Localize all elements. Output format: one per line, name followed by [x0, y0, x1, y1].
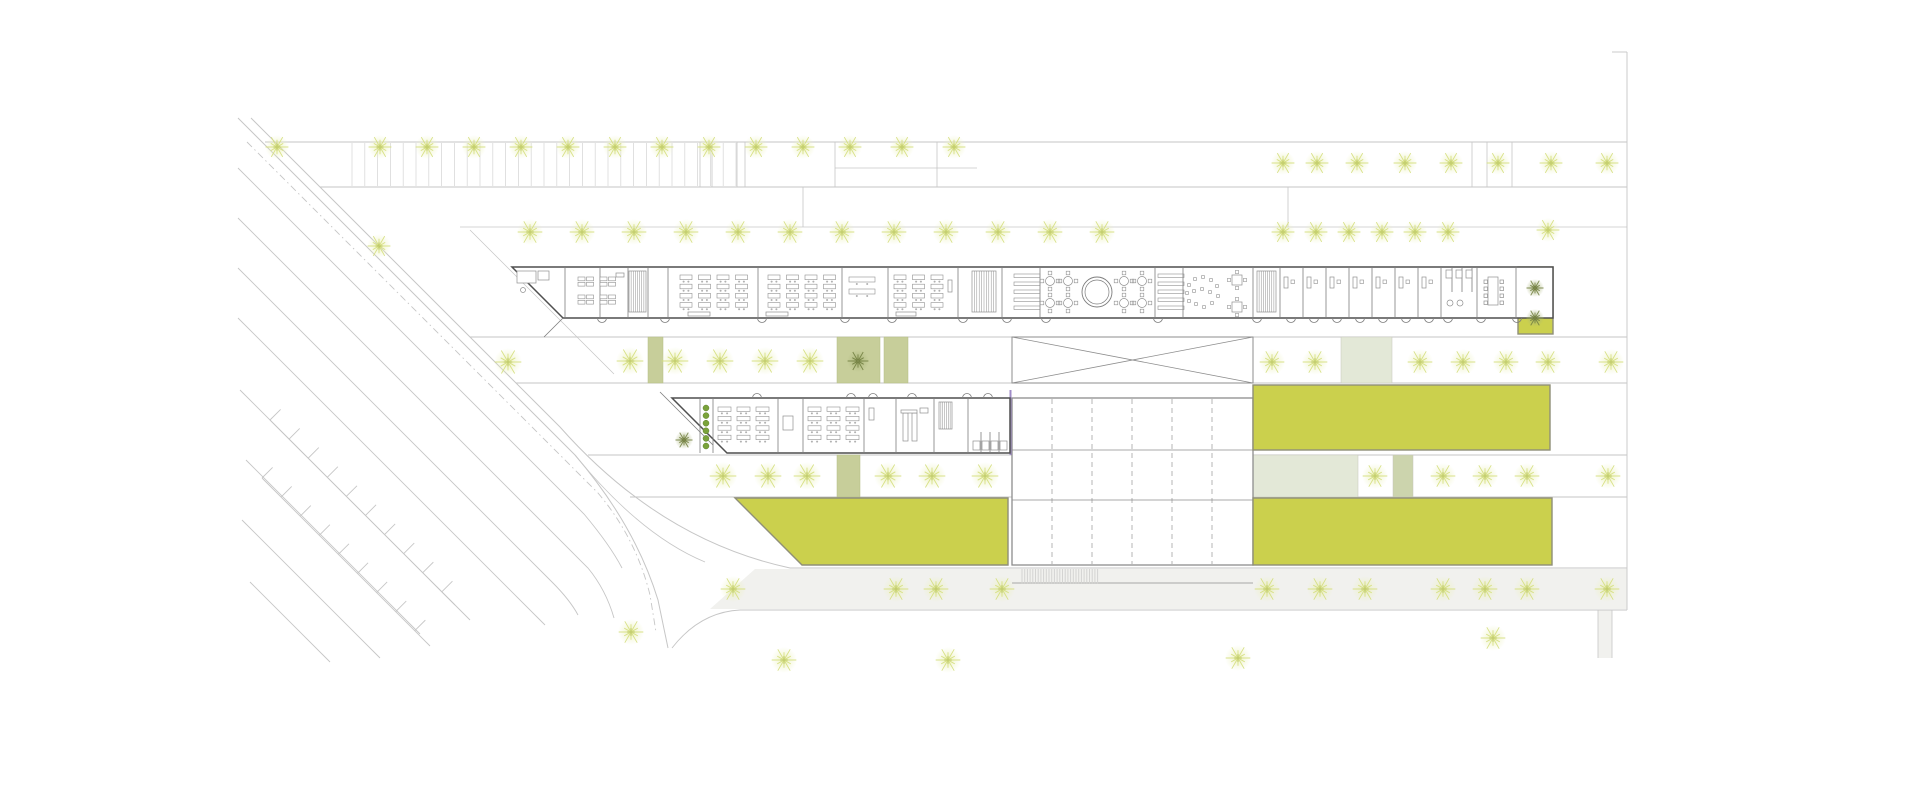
tree-symbol — [706, 347, 734, 375]
parking-tick — [385, 524, 396, 535]
tree-symbol — [791, 135, 815, 159]
chair-dot — [706, 290, 708, 292]
chair-dot — [724, 290, 726, 292]
chair-dot — [771, 290, 773, 292]
chair-dot — [701, 281, 703, 283]
chair-dot — [854, 412, 856, 414]
office-desk — [1376, 277, 1380, 288]
chair-dot — [743, 308, 745, 310]
road-line — [242, 520, 380, 658]
tree-symbol — [838, 135, 862, 159]
parking-tick — [308, 448, 319, 459]
chair-dot — [901, 299, 903, 301]
tree-symbol — [265, 135, 289, 159]
chair-dot — [706, 299, 708, 301]
desk — [846, 416, 859, 420]
desk — [931, 284, 943, 289]
chair-dot — [826, 281, 828, 283]
chair-dot — [831, 281, 833, 283]
chair-dot — [724, 281, 726, 283]
tree-symbol — [793, 462, 821, 490]
chair-dot — [866, 295, 868, 297]
desk — [787, 293, 799, 298]
chair-dot — [920, 281, 922, 283]
tree-symbol — [603, 135, 627, 159]
chair-dot — [771, 281, 773, 283]
desk — [768, 284, 780, 289]
desk — [894, 284, 906, 289]
tree-symbol — [1430, 463, 1456, 489]
desk — [808, 416, 821, 420]
tree-symbol — [661, 347, 689, 375]
tree-symbol — [1037, 219, 1063, 245]
planter-shrub — [703, 420, 709, 426]
planter-shrub — [703, 428, 709, 434]
furniture — [1500, 301, 1504, 305]
desk — [736, 275, 748, 280]
desk — [600, 277, 607, 281]
furniture — [688, 312, 710, 316]
parking-tick — [442, 581, 453, 592]
tree-symbol — [1535, 349, 1561, 375]
chair-dot — [759, 431, 761, 433]
tree-symbol — [754, 462, 782, 490]
desk — [680, 293, 692, 298]
tree-symbol — [881, 219, 907, 245]
tree-symbol — [1439, 151, 1463, 175]
furniture — [1484, 280, 1488, 284]
tree-symbol — [1514, 576, 1540, 602]
chair-dot — [811, 431, 813, 433]
tree-symbol — [415, 135, 439, 159]
desk — [680, 303, 692, 308]
desk — [805, 284, 817, 289]
tree-symbol — [1254, 576, 1280, 602]
tree-symbol — [1271, 151, 1295, 175]
chair-dot — [743, 290, 745, 292]
tree-symbol — [725, 219, 751, 245]
tree-symbol — [368, 135, 392, 159]
chair-dot — [724, 308, 726, 310]
tree-symbol — [1450, 349, 1476, 375]
chair-dot — [816, 422, 818, 424]
chair-dot — [934, 308, 936, 310]
chair-dot — [775, 281, 777, 283]
chair-dot — [826, 290, 828, 292]
desk — [737, 416, 750, 420]
desk — [931, 303, 943, 308]
tree-symbol — [709, 462, 737, 490]
chair-dot — [759, 412, 761, 414]
tree-symbol — [1362, 463, 1388, 489]
desk — [913, 293, 925, 298]
chair-dot — [812, 308, 814, 310]
desk — [808, 426, 821, 430]
tree-symbol — [1430, 576, 1456, 602]
parking-tick — [357, 563, 368, 574]
chair-dot — [812, 290, 814, 292]
chair-dot — [687, 308, 689, 310]
furniture — [1484, 294, 1488, 298]
tree-symbol — [697, 135, 721, 159]
chair-dot — [812, 299, 814, 301]
tree-symbol — [1302, 349, 1328, 375]
office-desk — [1307, 277, 1311, 288]
desk — [578, 300, 585, 304]
upper-building — [512, 267, 1553, 337]
chair-dot — [849, 412, 851, 414]
chair-dot — [740, 412, 742, 414]
chair-dot — [816, 431, 818, 433]
tree-symbol — [1352, 576, 1378, 602]
desk — [849, 289, 875, 294]
tree-symbol — [509, 135, 533, 159]
tree-symbol — [462, 135, 486, 159]
tree-symbol — [874, 462, 902, 490]
furniture — [901, 410, 917, 413]
furniture — [517, 271, 536, 283]
road-line — [575, 455, 705, 562]
chair-dot — [811, 422, 813, 424]
chair-dot — [901, 281, 903, 283]
chair-dot — [743, 299, 745, 301]
desk — [824, 284, 836, 289]
chair-dot — [738, 299, 740, 301]
tree-symbol — [1345, 151, 1369, 175]
desk — [846, 407, 859, 411]
tree-symbol — [517, 219, 543, 245]
desk — [787, 303, 799, 308]
desk — [846, 426, 859, 430]
chair-dot — [775, 299, 777, 301]
furniture — [1000, 441, 1007, 450]
desk — [827, 426, 840, 430]
furniture — [920, 408, 928, 413]
tree-symbol — [556, 135, 580, 159]
desk — [824, 303, 836, 308]
chair-dot — [938, 299, 940, 301]
chair-dot — [721, 441, 723, 443]
road-line — [247, 142, 656, 632]
desk — [717, 275, 729, 280]
chair-dot — [849, 422, 851, 424]
road-line — [246, 460, 420, 634]
chair-dot — [808, 290, 810, 292]
fixture-circle — [521, 288, 526, 293]
tree-symbol — [942, 135, 966, 159]
tree-symbol — [918, 462, 946, 490]
tree-symbol-dark — [1526, 309, 1544, 327]
side-path — [1598, 610, 1612, 658]
tree-symbol — [1598, 349, 1624, 375]
pale-patch — [1341, 337, 1392, 383]
chair-dot — [808, 299, 810, 301]
tree-symbol — [1271, 220, 1295, 244]
desk — [913, 284, 925, 289]
chair-dot — [683, 299, 685, 301]
desk — [768, 293, 780, 298]
chair-dot — [721, 422, 723, 424]
desk — [609, 277, 616, 281]
chair-dot — [720, 290, 722, 292]
furniture — [1488, 277, 1498, 305]
furniture — [1500, 280, 1504, 284]
grid-hall — [1012, 398, 1253, 584]
desk — [805, 303, 817, 308]
planter-shrub — [703, 435, 709, 441]
chair-dot — [830, 422, 832, 424]
chair-dot — [812, 281, 814, 283]
planter-shrub — [703, 413, 709, 419]
lawn-lower-left — [735, 498, 1008, 565]
tree-symbol — [720, 576, 746, 602]
furniture — [1446, 270, 1452, 278]
chair-dot — [866, 283, 868, 285]
chair-dot — [701, 308, 703, 310]
chair-dot — [721, 431, 723, 433]
tree-symbol — [1259, 349, 1285, 375]
chair-dot — [794, 299, 796, 301]
chair-dot — [938, 308, 940, 310]
parking-tick — [396, 601, 407, 612]
road-line — [238, 168, 622, 568]
road-line — [238, 268, 578, 615]
chair-dot — [811, 412, 813, 414]
chair-dot — [794, 308, 796, 310]
furniture — [1500, 287, 1504, 291]
chair-dot — [934, 299, 936, 301]
chair-dot — [789, 299, 791, 301]
desk — [587, 295, 594, 299]
chair-dot — [720, 308, 722, 310]
desk — [849, 277, 875, 282]
tree-symbol — [1486, 151, 1510, 175]
tree-symbol — [618, 619, 644, 645]
desk — [600, 300, 607, 304]
desk — [827, 416, 840, 420]
furniture — [1484, 301, 1488, 305]
furniture — [973, 441, 980, 450]
desk — [699, 303, 711, 308]
desk — [718, 416, 731, 420]
tree-symbol — [1407, 349, 1433, 375]
chair-dot — [789, 308, 791, 310]
tree-symbol — [1480, 625, 1506, 651]
desk — [846, 435, 859, 439]
tree-symbol — [1403, 220, 1427, 244]
parking-tick — [338, 544, 349, 555]
chair-dot — [901, 308, 903, 310]
chair-dot — [775, 290, 777, 292]
tree-symbol — [1594, 576, 1620, 602]
furniture — [616, 273, 624, 277]
tree-symbol — [1436, 220, 1460, 244]
tree-symbol — [1305, 151, 1329, 175]
tree-symbol — [883, 576, 909, 602]
chair-dot — [830, 441, 832, 443]
chair-dot — [934, 290, 936, 292]
chair-dot — [775, 308, 777, 310]
site-plan-page — [0, 0, 1920, 800]
chair-dot — [901, 290, 903, 292]
chair-dot — [915, 281, 917, 283]
desk — [718, 407, 731, 411]
office-desk — [1399, 277, 1403, 288]
parking-tick — [423, 562, 434, 573]
chair-dot — [830, 431, 832, 433]
chair-dot — [897, 308, 899, 310]
tree-symbol — [989, 576, 1015, 602]
chair-dot — [897, 299, 899, 301]
chair-dot — [738, 290, 740, 292]
office-desk — [1353, 277, 1357, 288]
tree-symbol — [935, 647, 961, 673]
chair-dot — [915, 299, 917, 301]
chair-dot — [835, 441, 837, 443]
chair-dot — [854, 441, 856, 443]
tree-symbol — [890, 135, 914, 159]
desk — [609, 300, 616, 304]
parking-tick — [300, 506, 311, 517]
chair-dot — [764, 441, 766, 443]
desk — [756, 426, 769, 430]
tree-symbol — [1472, 576, 1498, 602]
pale-patch — [1253, 455, 1358, 497]
tree-symbol — [1225, 645, 1251, 671]
tree-symbol — [1595, 463, 1621, 489]
tree-symbol — [650, 135, 674, 159]
desk — [736, 284, 748, 289]
parking-tick — [270, 409, 281, 420]
parking-tick — [289, 428, 300, 439]
chair-dot — [687, 299, 689, 301]
chair-dot — [854, 422, 856, 424]
x-ramp — [1012, 337, 1253, 383]
tree-symbol — [569, 219, 595, 245]
tree-symbol — [1493, 349, 1519, 375]
desk — [756, 435, 769, 439]
desk — [717, 293, 729, 298]
chair-dot — [920, 308, 922, 310]
chair-dot — [745, 412, 747, 414]
tree-symbol — [1539, 151, 1563, 175]
lawn-upper-right — [1253, 385, 1550, 450]
chair-dot — [816, 412, 818, 414]
desk — [587, 277, 594, 281]
tree-symbol — [971, 462, 999, 490]
parking-tick — [281, 486, 292, 497]
tree-symbol — [1304, 220, 1328, 244]
desk — [609, 282, 616, 286]
furniture — [912, 413, 917, 441]
furniture — [982, 441, 989, 450]
tree-symbol-dark — [675, 431, 693, 449]
chair-dot — [740, 431, 742, 433]
tree-symbol — [796, 347, 824, 375]
desk — [737, 426, 750, 430]
tree-symbol — [1536, 218, 1560, 242]
tree-symbol — [1595, 151, 1619, 175]
desk — [913, 275, 925, 280]
parking-tick — [365, 505, 376, 516]
chair-dot — [831, 290, 833, 292]
chair-dot — [854, 431, 856, 433]
desk — [894, 293, 906, 298]
tree-symbol — [1370, 220, 1394, 244]
desk — [824, 293, 836, 298]
chair-dot — [738, 308, 740, 310]
desk — [808, 435, 821, 439]
office-desk — [1330, 277, 1334, 288]
desk — [578, 277, 585, 281]
chair-dot — [721, 412, 723, 414]
chair-dot — [743, 281, 745, 283]
desk — [600, 295, 607, 299]
tree-symbol — [1337, 220, 1361, 244]
furniture — [766, 312, 788, 316]
desk — [768, 303, 780, 308]
desk — [717, 303, 729, 308]
lower-building — [660, 392, 1010, 453]
chair-dot — [831, 299, 833, 301]
furniture — [869, 408, 874, 420]
desk — [578, 295, 585, 299]
desk — [717, 284, 729, 289]
tree-symbol — [1514, 463, 1540, 489]
architectural-site-plan — [0, 0, 1920, 800]
tree-symbol — [616, 347, 644, 375]
chair-dot — [740, 441, 742, 443]
chair-dot — [816, 441, 818, 443]
chair-dot — [759, 441, 761, 443]
tree-symbol — [494, 348, 522, 376]
chair-dot — [764, 412, 766, 414]
porch-edge — [544, 318, 563, 337]
desk — [824, 275, 836, 280]
desk — [600, 282, 607, 286]
tree-symbol — [673, 219, 699, 245]
chair-dot — [915, 308, 917, 310]
furniture — [1500, 294, 1504, 298]
parking-spine — [262, 478, 430, 646]
tree-symbol — [923, 576, 949, 602]
tree-symbol-dark — [847, 350, 869, 372]
chair-dot — [835, 431, 837, 433]
chair-dot — [745, 422, 747, 424]
chair-dot — [789, 290, 791, 292]
chair-dot — [764, 431, 766, 433]
chair-dot — [740, 422, 742, 424]
desk — [768, 275, 780, 280]
furniture — [1466, 270, 1472, 278]
road-line — [250, 582, 330, 662]
furniture — [1456, 270, 1462, 278]
desk — [699, 275, 711, 280]
chair-dot — [726, 441, 728, 443]
desk — [737, 435, 750, 439]
tree-symbol — [367, 234, 391, 258]
desk — [805, 293, 817, 298]
parking-spine — [270, 420, 455, 605]
chair-dot — [826, 299, 828, 301]
desk — [736, 293, 748, 298]
furniture — [903, 413, 908, 441]
desk — [913, 303, 925, 308]
desk — [699, 293, 711, 298]
chair-dot — [687, 290, 689, 292]
desk — [931, 275, 943, 280]
desk — [787, 275, 799, 280]
